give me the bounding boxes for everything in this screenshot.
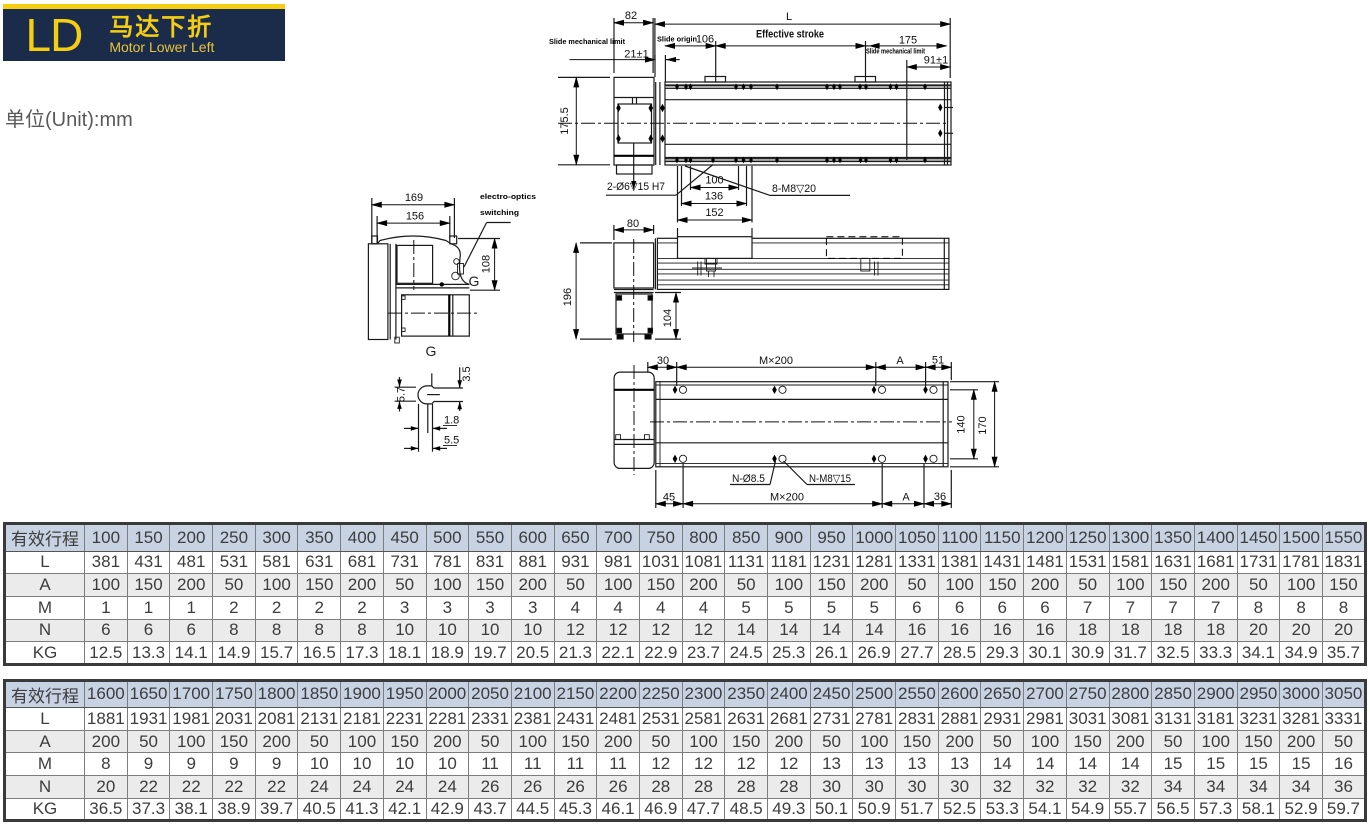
svg-text:5.7: 5.7 bbox=[396, 387, 408, 402]
svg-text:80: 80 bbox=[627, 218, 639, 230]
svg-text:Slide mechanical limit: Slide mechanical limit bbox=[549, 37, 625, 46]
svg-text:21±1: 21±1 bbox=[624, 49, 648, 61]
svg-text:170: 170 bbox=[977, 416, 989, 434]
svg-text:30: 30 bbox=[657, 355, 669, 367]
svg-text:91±1: 91±1 bbox=[924, 55, 948, 67]
svg-text:A: A bbox=[896, 355, 904, 367]
svg-text:Effective stroke: Effective stroke bbox=[756, 29, 824, 41]
svg-text:Slide origin: Slide origin bbox=[657, 35, 697, 44]
svg-text:196: 196 bbox=[562, 288, 574, 306]
svg-text:108: 108 bbox=[481, 255, 493, 273]
svg-text:152: 152 bbox=[705, 207, 723, 219]
svg-text:L: L bbox=[786, 11, 792, 23]
svg-text:169: 169 bbox=[405, 192, 423, 204]
svg-text:175.5: 175.5 bbox=[559, 107, 571, 135]
svg-text:A: A bbox=[902, 492, 910, 504]
svg-text:45: 45 bbox=[663, 492, 675, 504]
svg-text:G: G bbox=[469, 273, 480, 289]
svg-text:136: 136 bbox=[705, 191, 723, 203]
svg-text:5.5: 5.5 bbox=[444, 435, 459, 447]
svg-text:104: 104 bbox=[662, 309, 674, 327]
svg-text:M×200: M×200 bbox=[770, 492, 804, 504]
svg-text:M×200: M×200 bbox=[759, 355, 793, 367]
svg-text:1.8: 1.8 bbox=[444, 415, 459, 427]
svg-text:156: 156 bbox=[406, 211, 424, 223]
svg-text:electro-optics: electro-optics bbox=[480, 192, 536, 201]
svg-text:8-M8▽20: 8-M8▽20 bbox=[772, 183, 816, 195]
svg-text:Slide mechanical limit: Slide mechanical limit bbox=[866, 47, 925, 56]
svg-text:switching: switching bbox=[480, 208, 519, 217]
svg-text:140: 140 bbox=[956, 415, 968, 433]
svg-text:175: 175 bbox=[899, 35, 917, 47]
svg-text:N-M8▽15: N-M8▽15 bbox=[809, 473, 851, 485]
svg-text:G: G bbox=[426, 343, 437, 359]
svg-text:N-Ø8.5: N-Ø8.5 bbox=[732, 473, 765, 485]
svg-text:82: 82 bbox=[625, 10, 637, 22]
svg-text:106: 106 bbox=[696, 34, 714, 46]
svg-text:2-Ø6▽15 H7: 2-Ø6▽15 H7 bbox=[607, 181, 665, 193]
svg-text:36: 36 bbox=[934, 491, 946, 503]
svg-text:3.5: 3.5 bbox=[461, 366, 473, 381]
svg-text:51: 51 bbox=[932, 355, 944, 367]
